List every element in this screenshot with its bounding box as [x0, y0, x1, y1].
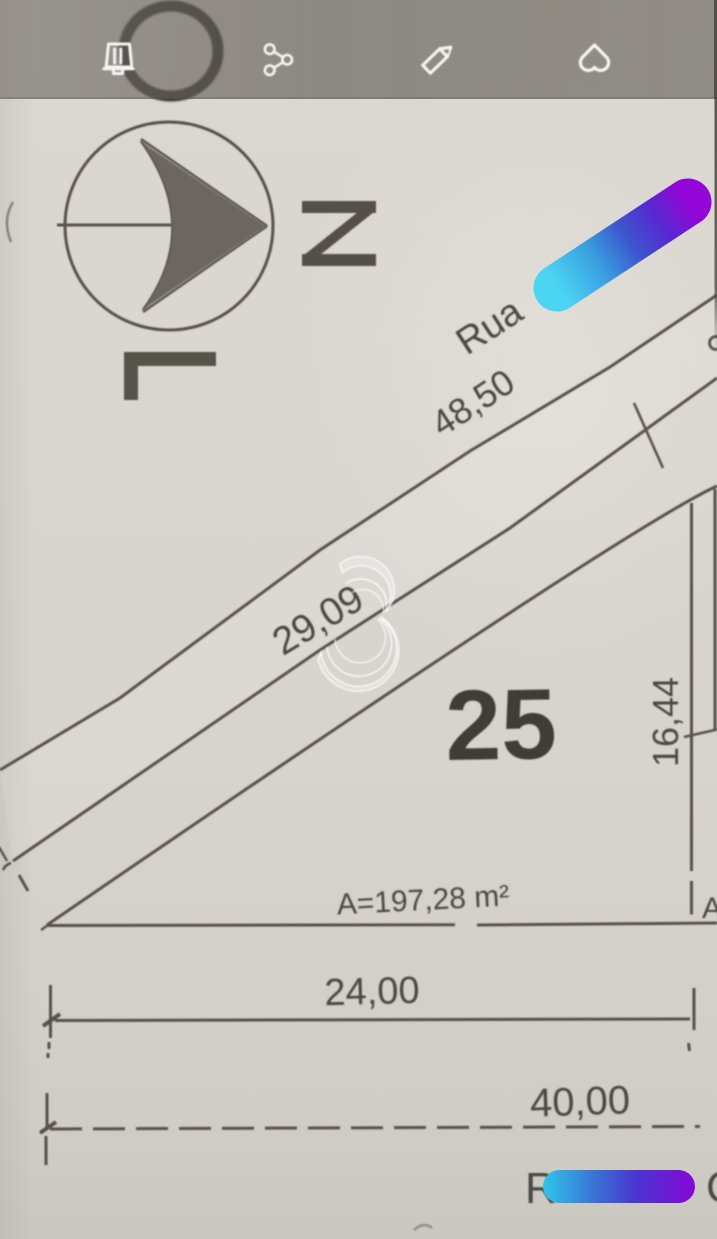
svg-text:24,00: 24,00	[324, 970, 420, 1014]
svg-text:G: G	[706, 1163, 717, 1212]
svg-text:A=197,28 m²: A=197,28 m²	[336, 880, 510, 922]
svg-text:Rua: Rua	[449, 290, 531, 364]
svg-text:A: A	[702, 892, 717, 925]
svg-text:16,44: 16,44	[645, 677, 686, 767]
svg-text:40,00: 40,00	[529, 1078, 631, 1125]
svg-text:25: 25	[444, 668, 557, 782]
